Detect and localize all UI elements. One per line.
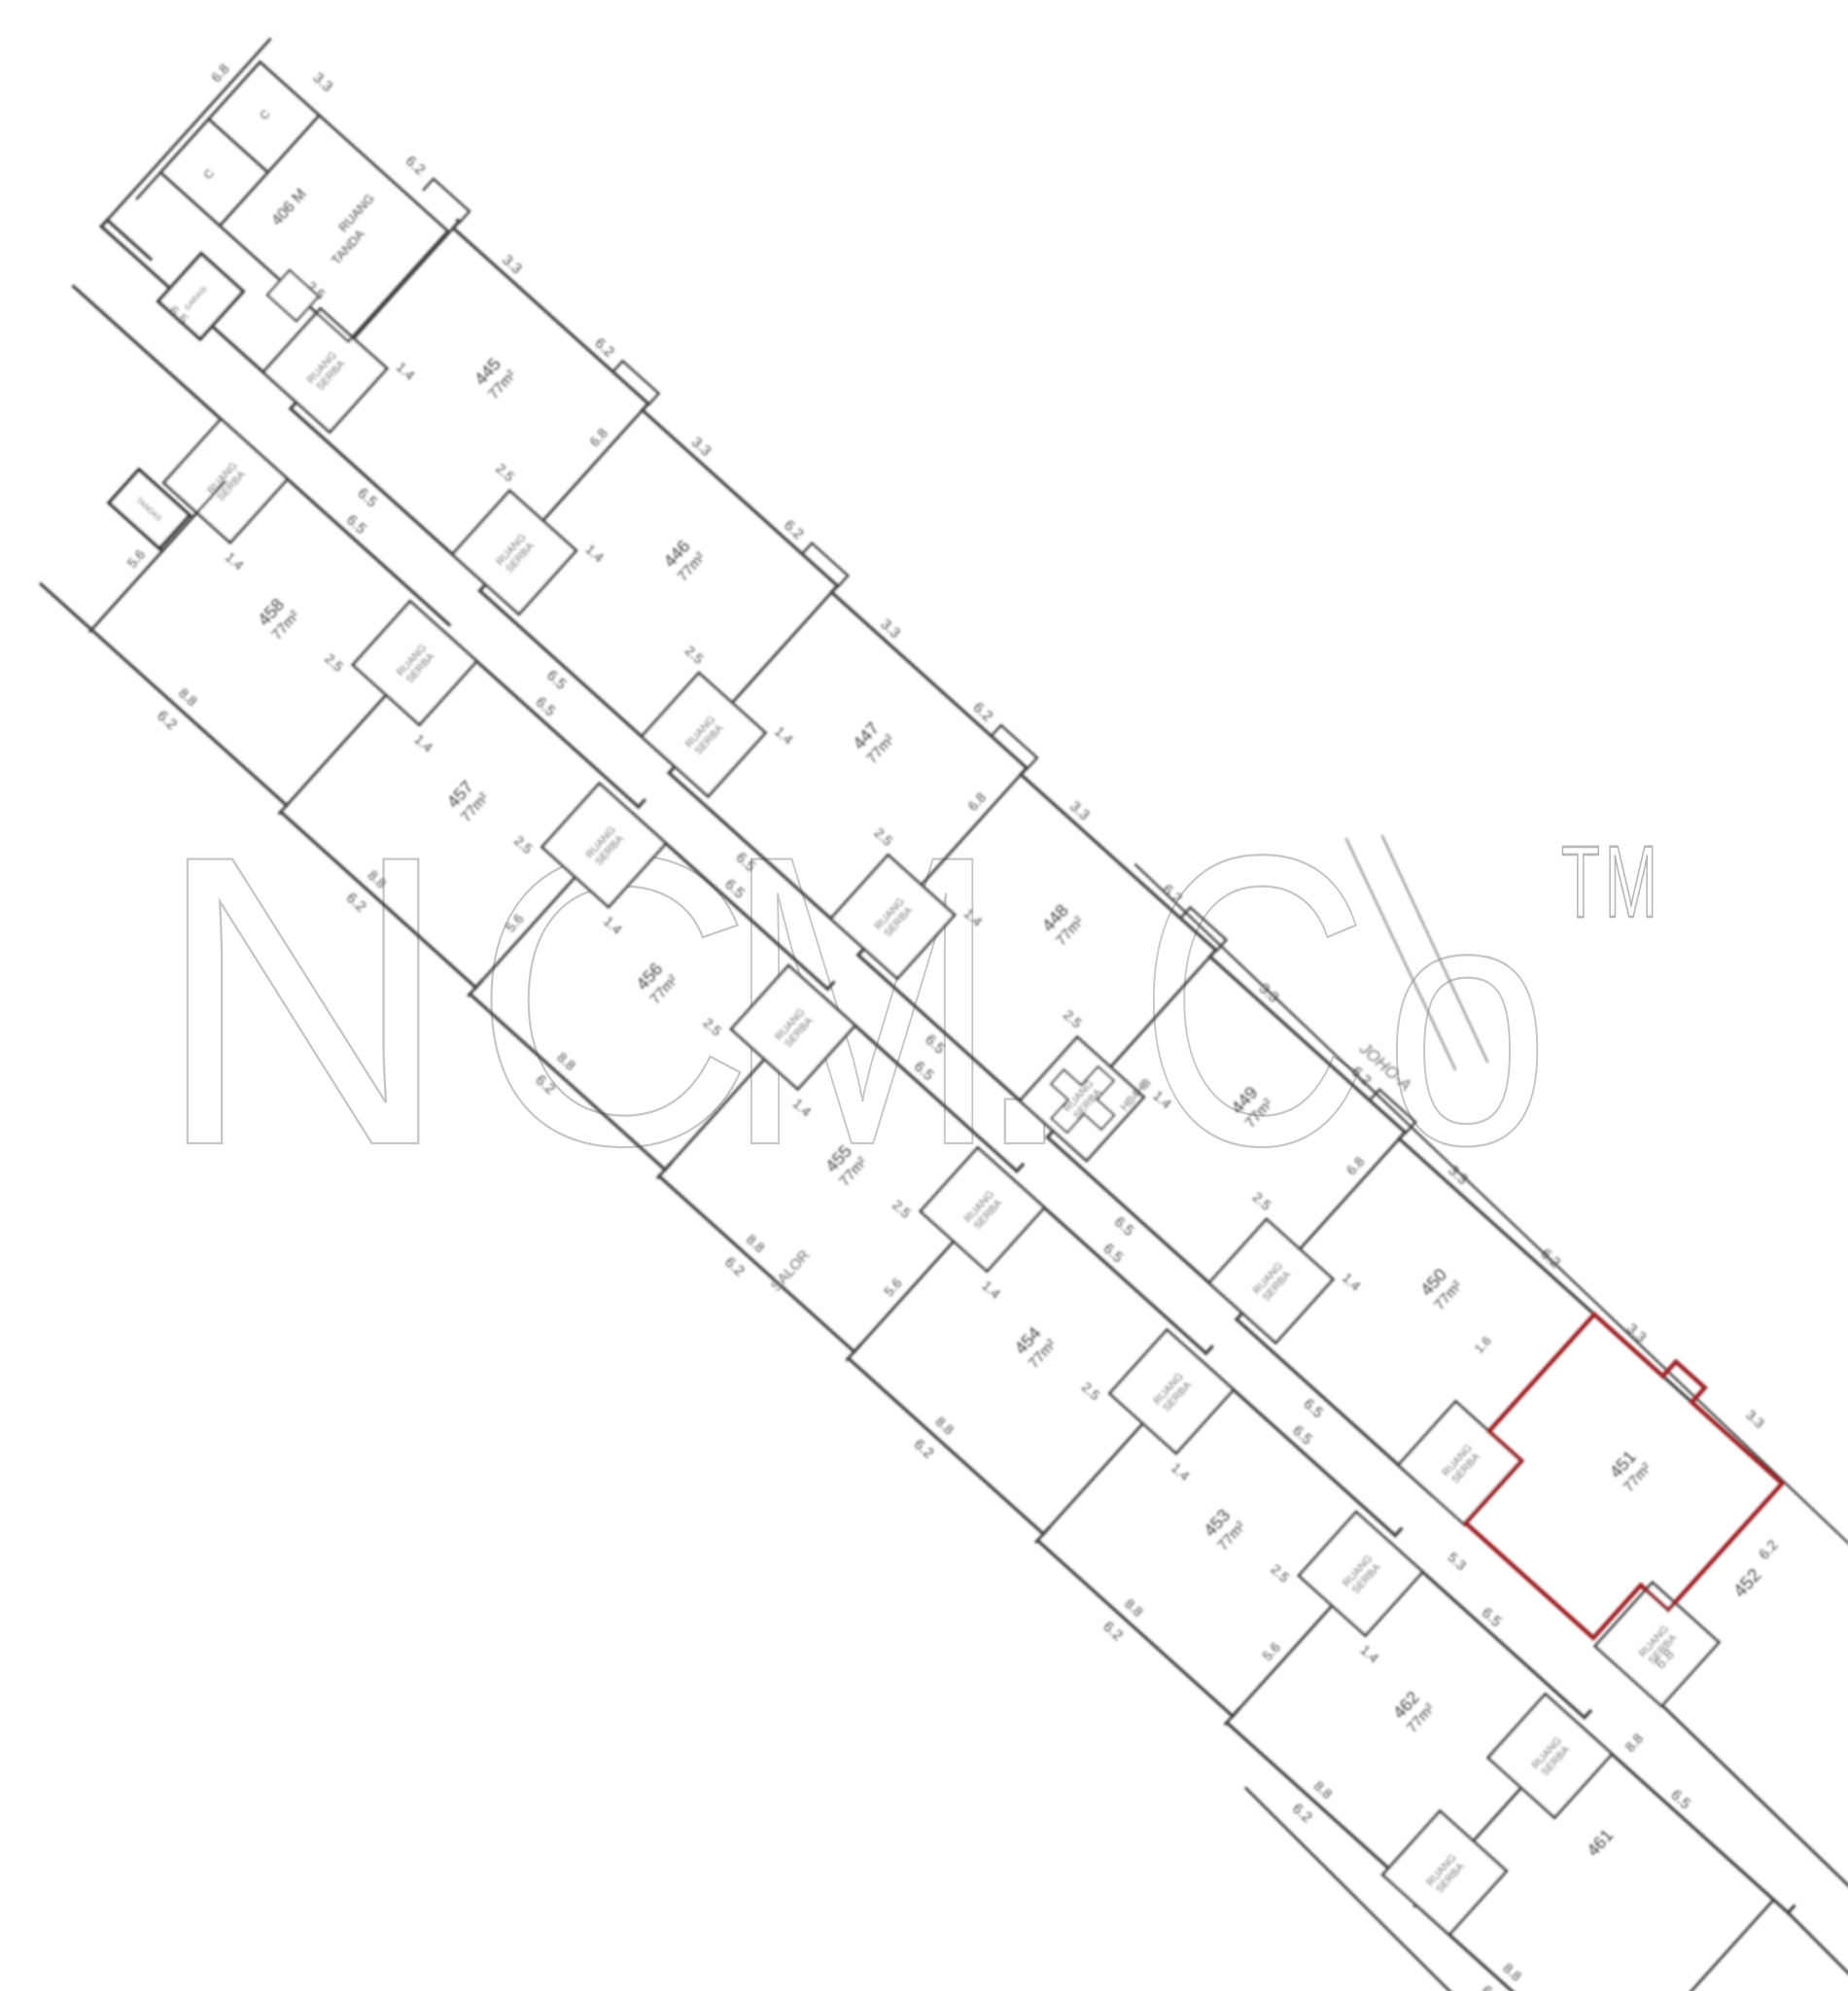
svg-text:o: o [1384,827,1550,1218]
svg-text:TM: TM [1561,824,1662,939]
svg-text:N: N [154,770,452,1232]
